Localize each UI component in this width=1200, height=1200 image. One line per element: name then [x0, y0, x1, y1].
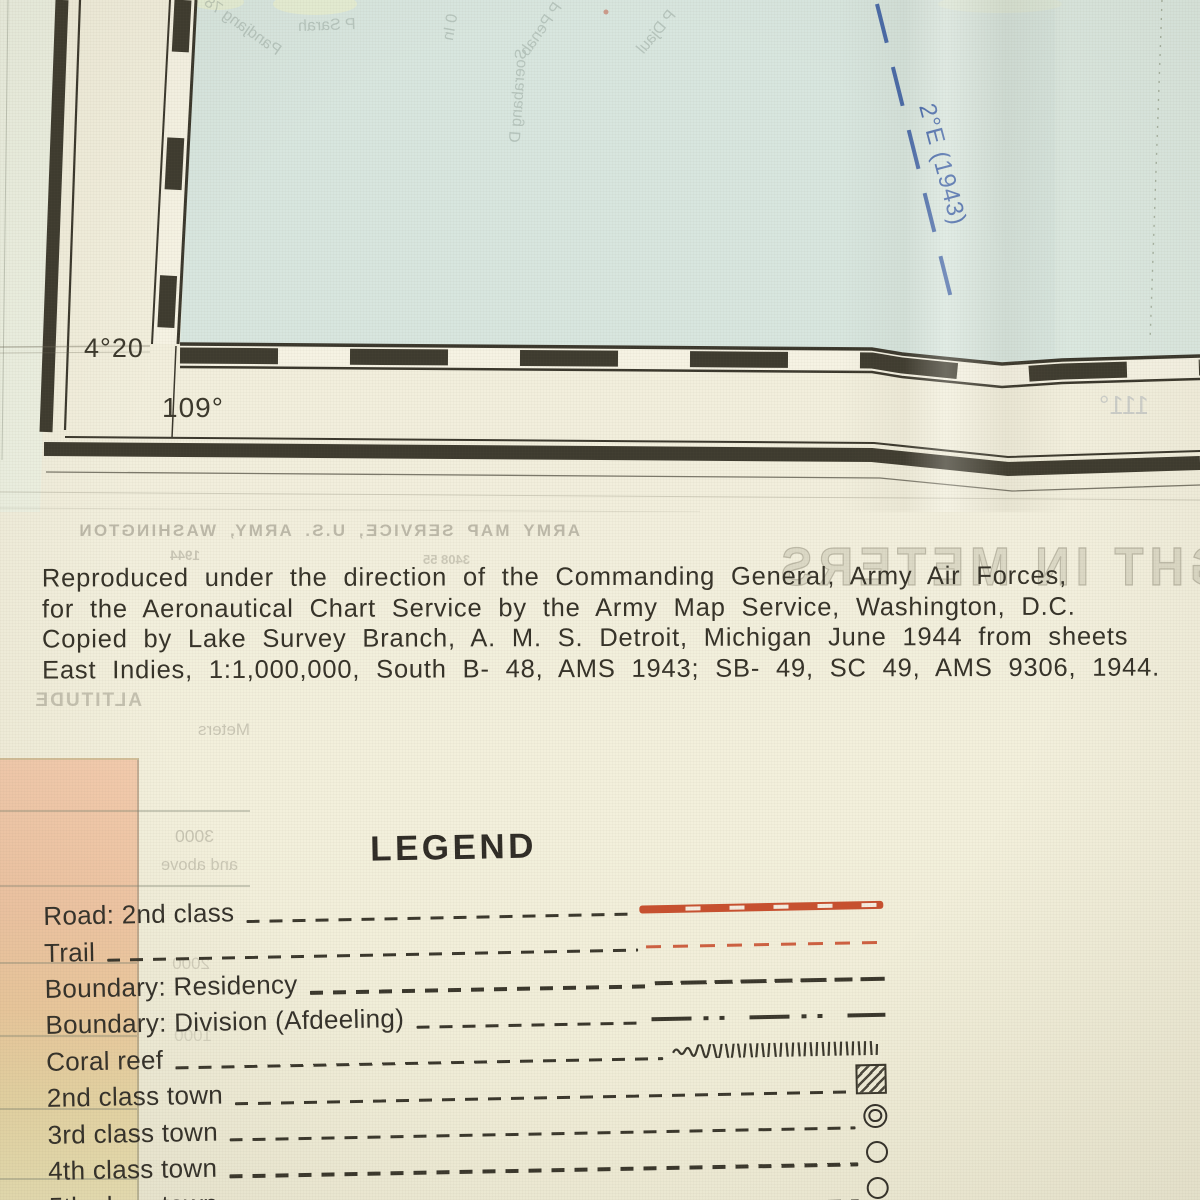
legend-rows: Road: 2nd class Trail Boundary: Residenc…	[1, 882, 889, 1200]
red-speck	[604, 10, 609, 15]
attribution-line: for the Aeronautical Chart Service by th…	[42, 591, 1172, 624]
road-symbol	[639, 901, 883, 914]
leader-dashes	[246, 912, 631, 923]
trail-symbol	[646, 935, 884, 943]
legend: LEGEND Road: 2nd class Trail Boundary: R…	[0, 820, 889, 1200]
latitude-label: 4°20	[84, 333, 144, 363]
legend-label: 3rd class town	[47, 1118, 218, 1147]
attribution-block: Reproduced under the direction of the Co…	[42, 561, 1172, 686]
legend-label: 2nd class town	[47, 1082, 224, 1111]
legend-label: Coral reef	[46, 1046, 164, 1074]
bleed-stamp-line: ARMY MAP SERVICE, U.S. ARMY, WASHINGTON	[0, 521, 580, 541]
2nd-class-town-symbol	[855, 1067, 887, 1098]
division-dash-dot	[651, 1013, 885, 1022]
leader-dashes	[310, 985, 647, 995]
coral-squiggle	[671, 1041, 886, 1059]
trail-dashes	[646, 941, 884, 949]
leader-dashes	[175, 1057, 663, 1070]
legend-label: Road: 2nd class	[43, 899, 234, 929]
legend-label: 5th class town	[49, 1191, 218, 1200]
legend-label: Boundary: Division (Afdeeling)	[45, 1005, 404, 1038]
boundary-residency-symbol	[655, 971, 885, 980]
sea-lighter-patch	[1055, 0, 1200, 358]
attribution-line: Reproduced under the direction of the Co…	[42, 561, 1172, 594]
legend-label: Trail	[44, 939, 96, 966]
bleed-year: 1944	[140, 548, 200, 563]
bleed-name: P Sarah	[298, 16, 356, 35]
double-circle	[863, 1103, 887, 1127]
sea-area	[180, 0, 1200, 364]
road-2nd-class-symbol	[639, 896, 883, 909]
bleed-meters: Meters	[158, 720, 250, 740]
attribution-line: East Indies, 1:1,000,000, South B- 48, A…	[42, 652, 1172, 685]
legend-title: LEGEND	[370, 820, 883, 870]
3rd-class-town-symbol	[863, 1106, 887, 1130]
boundary-division-symbol	[651, 1007, 885, 1016]
4th-class-town-symbol	[866, 1144, 888, 1166]
longitude-label: 109°	[162, 392, 224, 423]
cloth-map-photo: Pandjang 78 P Sarah 0 In P Penab Soeraba…	[0, 0, 1200, 1200]
longitude-bleed-label: 111°	[1099, 390, 1149, 420]
residency-dashes	[655, 977, 885, 986]
legend-label: 4th class town	[48, 1155, 217, 1184]
leader-dashes	[416, 1021, 643, 1029]
5th-class-town-symbol	[867, 1180, 889, 1200]
bleed-altitude: ALTITUDE	[0, 690, 142, 712]
open-circle	[867, 1177, 889, 1199]
open-circle	[866, 1141, 888, 1163]
attribution-line: Copied by Lake Survey Branch, A. M. S. D…	[42, 622, 1172, 655]
coral-reef-symbol	[671, 1041, 886, 1059]
map-corner-graphic: Pandjang 78 P Sarah 0 In P Penab Soeraba…	[0, 0, 1200, 512]
hatched-square	[855, 1064, 887, 1095]
tint-grid-line	[0, 810, 250, 812]
legend-label: Boundary: Residency	[44, 971, 297, 1002]
